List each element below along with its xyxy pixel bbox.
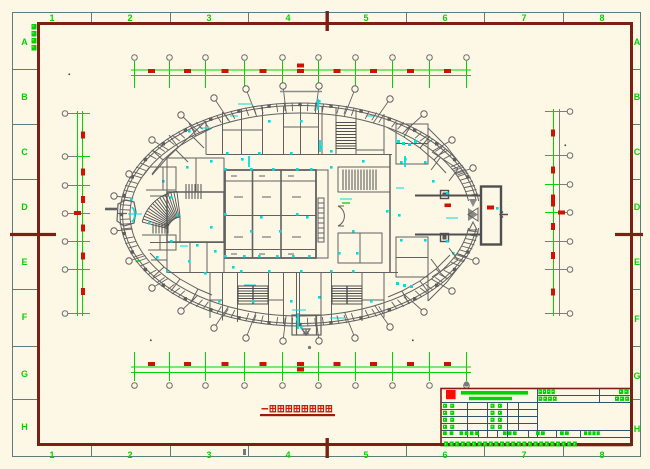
svg-text:2: 2 — [127, 13, 132, 23]
svg-text:C: C — [21, 147, 28, 157]
svg-text:H: H — [634, 424, 641, 434]
svg-text:G: G — [633, 371, 640, 381]
svg-text:E: E — [21, 257, 27, 267]
svg-text:5: 5 — [363, 13, 368, 23]
svg-text:A: A — [634, 37, 641, 47]
svg-text:F: F — [22, 312, 28, 322]
svg-text:H: H — [21, 422, 28, 432]
svg-text:B: B — [21, 92, 28, 102]
svg-text:G: G — [21, 369, 28, 379]
svg-text:1: 1 — [49, 13, 54, 23]
svg-text:1: 1 — [49, 450, 54, 460]
svg-text:B: B — [634, 92, 641, 102]
svg-text:D: D — [634, 202, 641, 212]
svg-text:6: 6 — [442, 13, 447, 23]
svg-text:E: E — [634, 257, 640, 267]
svg-text:F: F — [634, 314, 640, 324]
svg-text:A: A — [21, 37, 28, 47]
svg-text:4: 4 — [285, 13, 290, 23]
svg-text:C: C — [634, 147, 641, 157]
svg-text:6: 6 — [442, 450, 447, 460]
svg-text:8: 8 — [599, 450, 604, 460]
svg-text:5: 5 — [363, 450, 368, 460]
svg-text:3: 3 — [206, 450, 211, 460]
svg-text:3: 3 — [206, 13, 211, 23]
svg-text:7: 7 — [521, 450, 526, 460]
svg-text:2: 2 — [127, 450, 132, 460]
svg-text:4: 4 — [285, 450, 290, 460]
svg-text:7: 7 — [521, 13, 526, 23]
svg-text:8: 8 — [599, 13, 604, 23]
svg-text:D: D — [21, 202, 28, 212]
